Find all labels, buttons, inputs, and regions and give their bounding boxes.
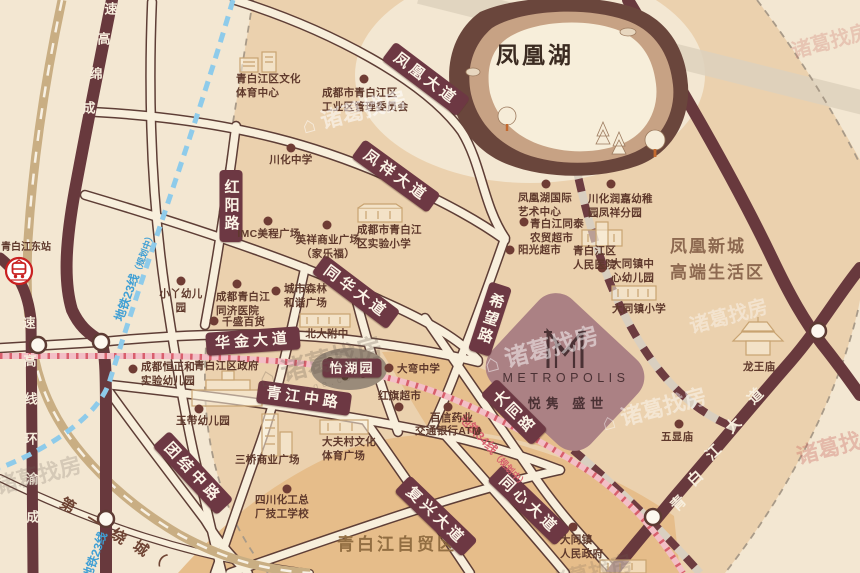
station-label: 青白江东站 (1, 238, 51, 253)
poi-label: 成都市青白江 区实验小学 (357, 224, 422, 251)
poi-label: 川化中学 (263, 154, 319, 168)
metropolis-name-en: METROPOLIS (503, 371, 630, 385)
poi-label: 英祥商业广场 （家乐福） (291, 234, 365, 261)
train-station-icon (6, 258, 32, 284)
poi-label: 大同镇中 心幼儿园 (611, 258, 654, 285)
poi-label: 三桥商业广场 (235, 454, 300, 468)
poi-label: 城市森林 和谐广场 (284, 283, 327, 310)
chengmian-expwy-char: 成 (82, 98, 95, 117)
building-beida-affiliated (300, 314, 350, 327)
building-experimental-primary (358, 204, 402, 222)
phoenix-lake (449, 0, 688, 176)
metropolis-name-cn: 悦隽 盛世 (528, 393, 609, 412)
chengyu-expwy-char: 线 (24, 389, 37, 408)
poi-label: 交通银行ATM (415, 425, 481, 439)
building-datong-primary (612, 286, 656, 300)
poi-label: 北大附中 (302, 328, 352, 342)
poi-label: 千盛百货 (222, 316, 265, 330)
area-label-new-town: 凤凰新城 高端生活区 (670, 234, 765, 287)
poi-label: 红旗超市 (378, 390, 421, 404)
chengyu-expwy-char: 高 (23, 351, 36, 370)
chengyu-expwy-char: 成 (26, 507, 39, 526)
poi-label: 成都市青白江区 工业区管理委员会 (322, 87, 408, 114)
poi-label: 凤凰湖国际 艺术中心 (518, 192, 572, 219)
map-canvas[interactable]: 凤凰湖 凤凰新城 高端生活区 青白江自贸区 凤凰大道 凤祥大道 同华大道 红阳路… (0, 0, 860, 573)
chengmian-expwy-char: 绵 (89, 64, 102, 83)
poi-label: 大弯中学 (397, 363, 440, 377)
poi-label: 四川化工总 厂技工学校 (255, 494, 309, 521)
poi-label: 成都青白江 同济医院 (216, 291, 270, 318)
area-label-free-trade-zone: 青白江自贸区 (337, 536, 457, 553)
chengyu-expwy-char: 环 (24, 429, 37, 448)
building-bottom-edge (600, 560, 646, 573)
poi-label: 成都恒正和 实验幼儿园 (141, 361, 195, 388)
poi-label: 大同镇 人民政府 (560, 534, 603, 561)
park-pill-yihuyuan: 怡湖园 (322, 359, 381, 378)
chengyu-expwy-char: 速 (22, 313, 35, 332)
poi-label: 玉带幼儿园 (176, 415, 230, 429)
building-dafucun-sports (320, 420, 368, 434)
poi-label: 青白江区 人民医院 (573, 245, 616, 272)
poi-label: 大夫村文化 体育广场 (322, 436, 376, 463)
chengmian-expwy-char: 速 (104, 0, 117, 18)
poi-label: 青白江区文化 体育中心 (236, 73, 301, 100)
poi-label: 阳光超市 (518, 244, 561, 258)
poi-label: 百信药业 (430, 412, 473, 426)
poi-label: 青白江同泰 农贸超市 (530, 218, 584, 245)
poi-label: 五显庙 (661, 431, 693, 445)
chengmian-expwy-char: 高 (97, 29, 110, 48)
poi-label: 青白江区政府 (194, 360, 259, 374)
poi-label: 川化润嘉幼稚 园凤祥分园 (588, 193, 653, 220)
lake-label: 凤凰湖 (496, 42, 574, 70)
poi-label: 大同镇小学 (612, 303, 666, 317)
poi-label: 小丫幼儿园 (155, 288, 207, 315)
chengyu-expwy-char: 渝 (25, 469, 38, 488)
poi-label: 龙王庙 (743, 361, 775, 375)
